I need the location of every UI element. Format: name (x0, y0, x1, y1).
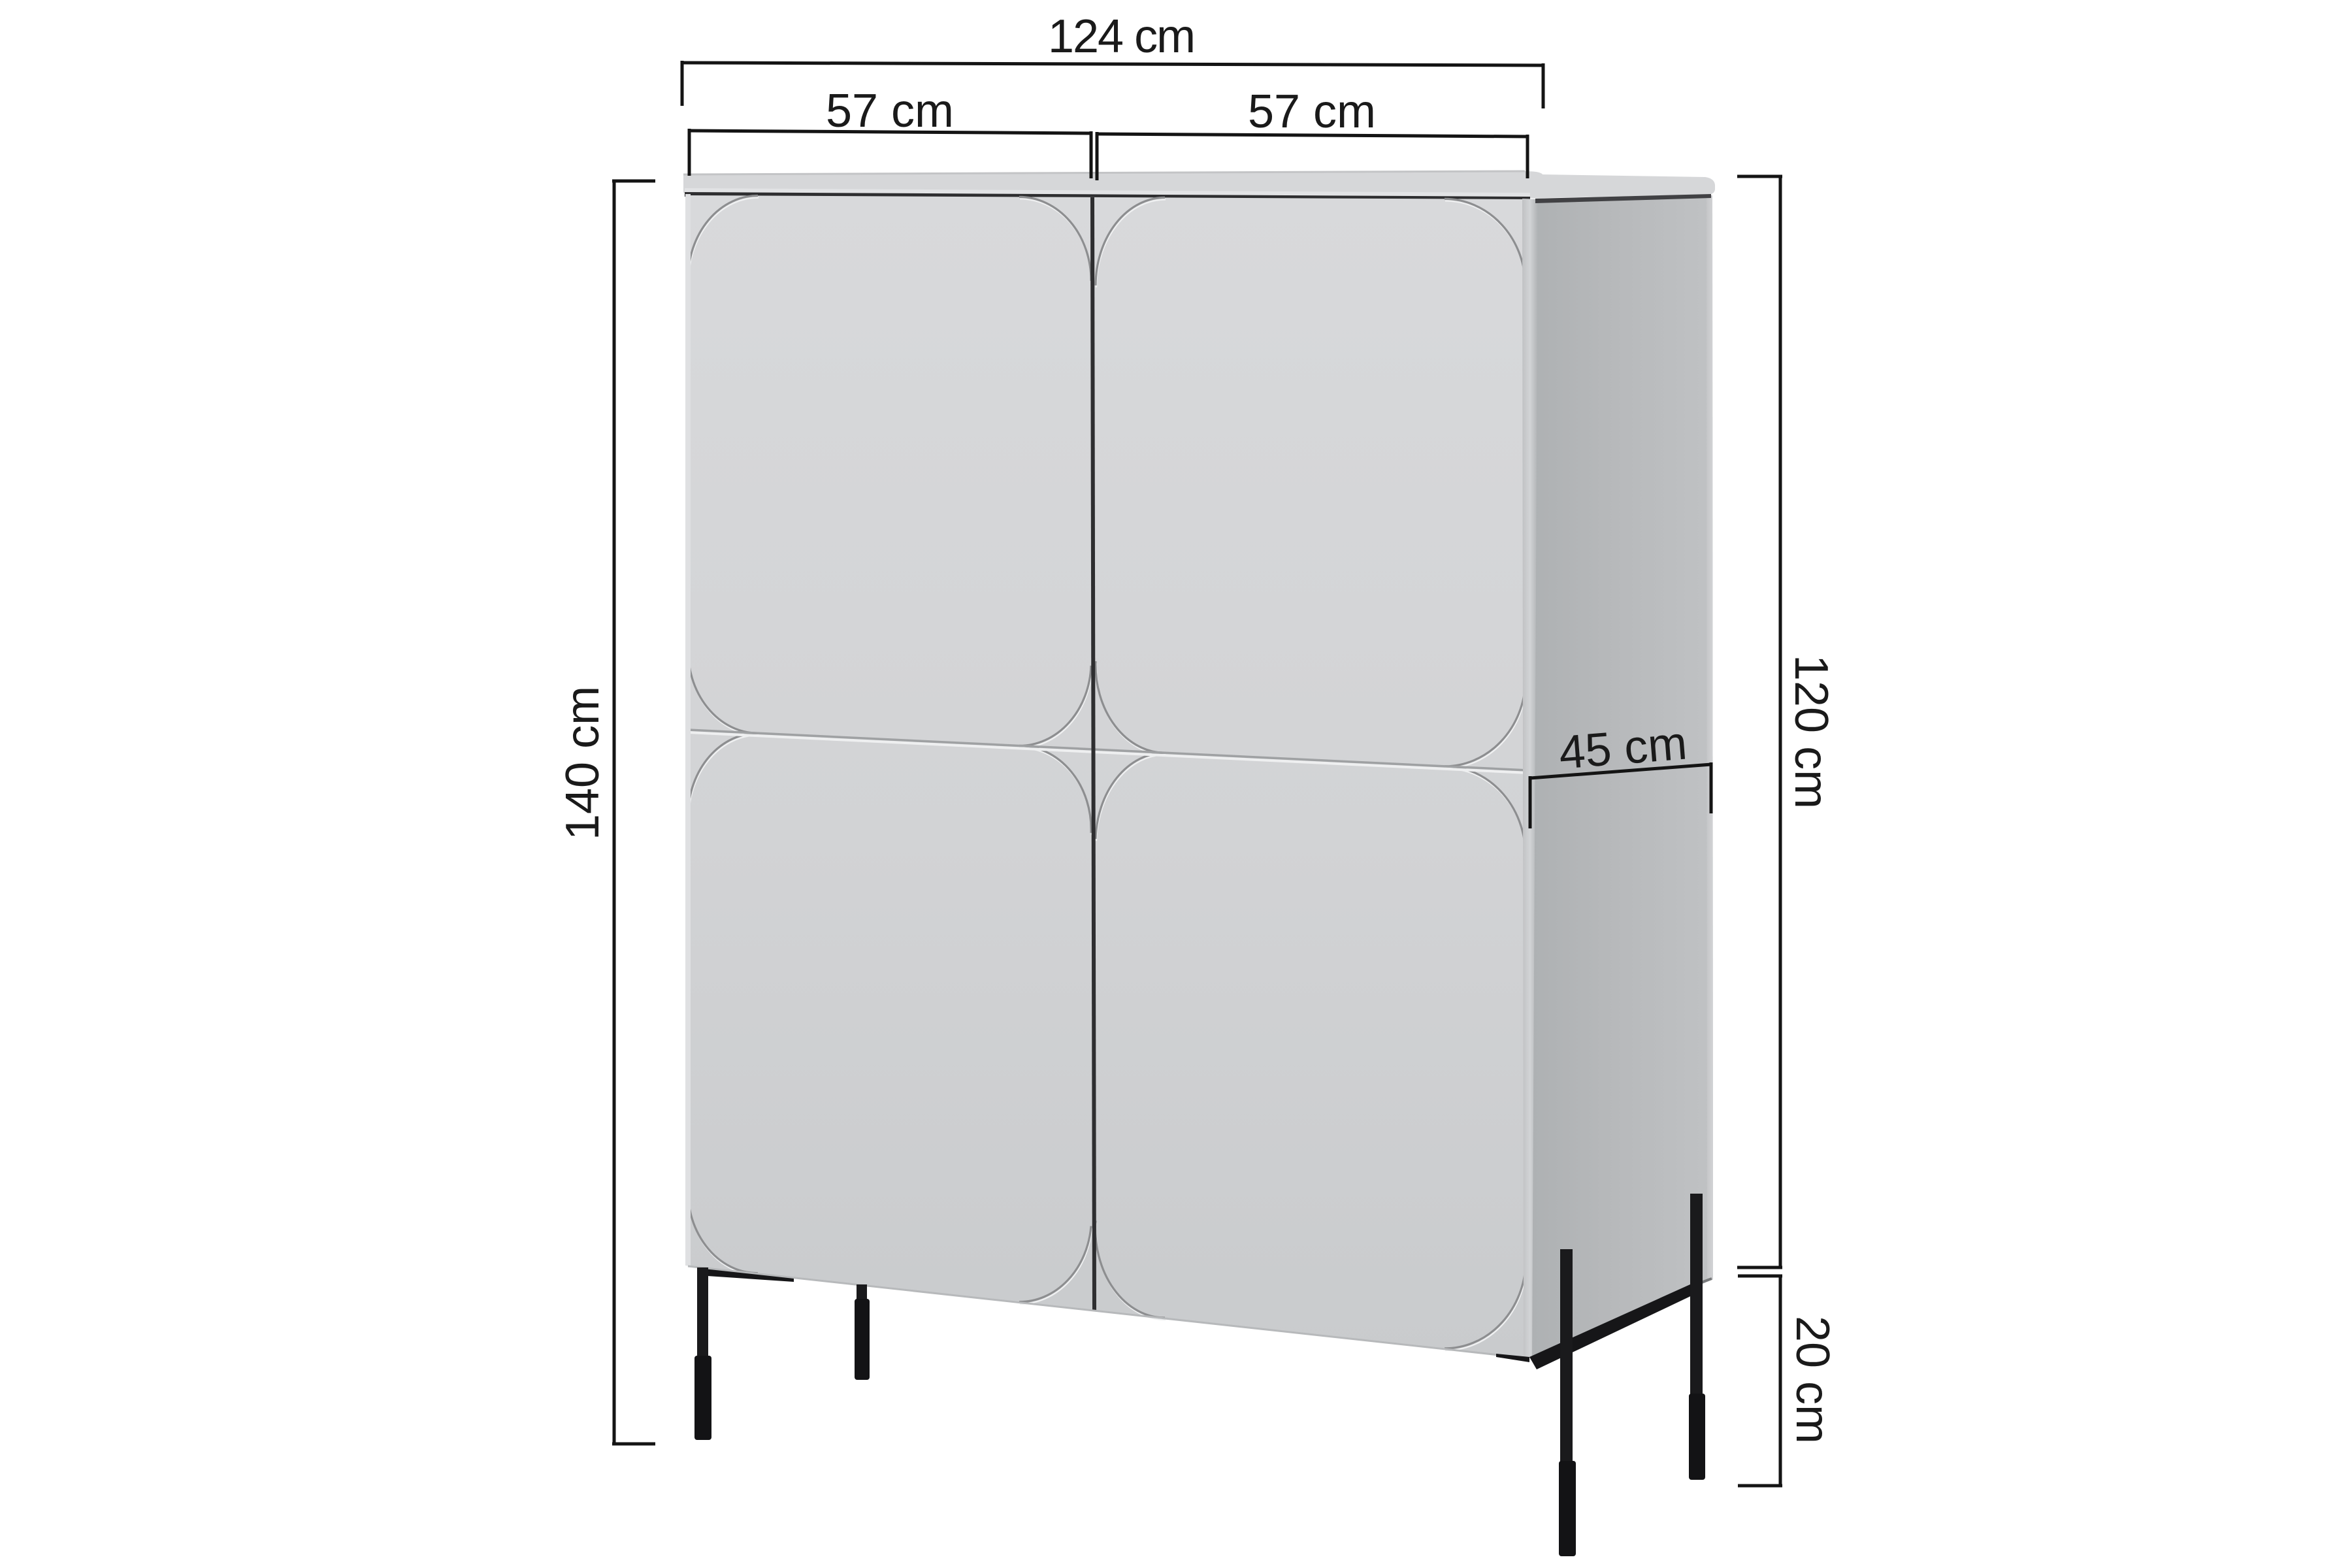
svg-text:57 cm: 57 cm (826, 85, 954, 137)
svg-text:120 cm: 120 cm (1785, 655, 1837, 809)
svg-text:45 cm: 45 cm (1557, 717, 1689, 779)
svg-text:140 cm: 140 cm (557, 686, 609, 840)
svg-text:124 cm: 124 cm (1048, 10, 1194, 63)
svg-text:57 cm: 57 cm (1248, 86, 1376, 138)
svg-text:20 cm: 20 cm (1786, 1316, 1838, 1444)
